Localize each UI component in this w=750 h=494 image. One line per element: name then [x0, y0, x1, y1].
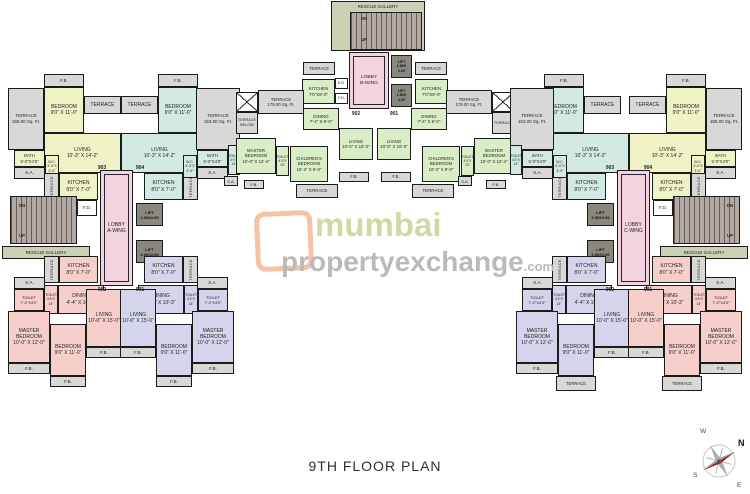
sa-label: S.A.	[705, 277, 736, 289]
bedroom-903a: BEDROOM9'0" X 11'-0"	[44, 87, 84, 133]
kitchen-903c: KITCHEN8'0" X 7'-0"	[567, 173, 606, 200]
terrace-179: TERRACE179.00 Sq. Ft.	[258, 90, 304, 114]
terrace-155a: TERRACE155.00 Sq. Ft.	[8, 88, 44, 150]
flat-number-901: 901	[386, 110, 402, 118]
stairs-dn-label: DN	[722, 202, 738, 210]
childrens-bedroom-901b: CHILDREN'SBEDROOM10'-3" X 9'-0"	[422, 146, 460, 182]
fb-strip: F.B.	[486, 180, 506, 189]
terrace-153c: TERRACE153.00 Sq. Ft.	[510, 88, 554, 150]
kitchen-904a: KITCHEN8'0" X 7'-0"	[144, 173, 183, 200]
fb-strip: F.B.	[516, 363, 558, 374]
fd-box: F.D.	[653, 200, 673, 216]
fb-strip: F.B.	[244, 180, 264, 189]
sa-label: S.A.	[224, 176, 238, 186]
compass: N W S E	[693, 427, 750, 493]
flat-number-904: 904	[132, 164, 148, 172]
fb-strip: F.B.	[156, 376, 192, 387]
toilet-902a-small: TOILET4'4"X14"	[44, 285, 58, 314]
ed-box: E.D.	[335, 78, 348, 89]
fb-strip: F.B.	[192, 363, 234, 374]
wc-903c: W.C.4'-0"X3'-0"	[553, 155, 567, 178]
terrace-strip: TERRACE	[84, 96, 121, 114]
compass-east-label: E	[737, 482, 741, 489]
flat-number-902: 902	[602, 286, 618, 294]
fb-strip: F.B.	[544, 74, 584, 87]
toilet-901c: TOILET7'-0"X4'0"	[706, 289, 736, 311]
kitchen-902c: KITCHEN8'0" X 7'-0"	[567, 256, 606, 283]
fd-box: F.D.	[335, 93, 348, 104]
bedroom-902c: BEDROOM9'0" X 11'-0"	[558, 324, 594, 376]
stairs-up-label: UP	[356, 36, 372, 44]
terrace-strip: TERRACE	[303, 62, 335, 75]
floor-plan: F.B.BEDROOM9'0" X 11'-0"TERRACE155.00 Sq…	[0, 0, 750, 494]
compass-rose-icon	[693, 427, 750, 493]
dining-902b: DINING7'-4" X 9'-0"	[303, 108, 339, 130]
toilet-901c-small: TOILET4'4"X14"	[692, 285, 706, 314]
flat-number-904: 904	[640, 164, 656, 172]
fb-strip: F.B.	[594, 347, 630, 358]
lobby-a-wing: LOBBYA-WING	[100, 170, 133, 286]
sa-label: S.A.	[14, 167, 45, 179]
living-901c: LIVING10'-0" X 15'-0"	[628, 289, 664, 347]
fb-strip: F.B.	[628, 347, 664, 358]
bedroom-902a: BEDROOM9'0" X 11'-0"	[50, 324, 86, 376]
terrace-below: TERRACEBELOW	[236, 112, 258, 134]
wc-904a: W.C.4'-0"X3'-0"	[183, 155, 197, 178]
fb-strip: F.B.	[700, 363, 742, 374]
lift-c1: LIFT2.00X2.00	[587, 203, 614, 226]
toilet-901a: TOILET7'-0"X4'0"	[198, 289, 228, 311]
page-title: 9TH FLOOR PLAN	[0, 458, 750, 474]
living-901b: LIVING10'-0" X 16'-0"	[377, 128, 411, 160]
master-bedroom-902c: MASTERBEDROOM10'-0" X 12'-0"	[516, 311, 558, 363]
sa-label: S.A.	[522, 167, 553, 179]
terrace-179: TERRACE179.00 Sq. Ft.	[446, 90, 492, 114]
living-902b: LIVING10'-0" X 16'-0"	[339, 128, 373, 160]
terrace-vertical: TERRACE	[691, 256, 706, 283]
flat-number-903: 903	[94, 164, 110, 172]
lift-b2: LIFT1.80X2.00	[391, 84, 412, 107]
fb-strip: F.B.	[120, 347, 156, 358]
toilet-902b: TOILET4'4"X14"	[276, 146, 289, 176]
master-bedroom-901c: MASTERBEDROOM10'-0" X 12'-0"	[700, 311, 742, 363]
terrace-strip: TERRACE	[415, 62, 447, 75]
fb-strip: F.B.	[50, 376, 86, 387]
stairs-up-label: UP	[14, 232, 30, 240]
lift-b1: LIFT1.80X2.00	[391, 55, 412, 78]
sa-label: S.A.	[458, 176, 472, 186]
lobby-b-wing: LOBBYB-WING	[349, 52, 389, 109]
kitchen-902a: KITCHEN8'0" X 7'-0"	[59, 256, 98, 283]
compass-north-label: N	[738, 438, 745, 448]
bedroom-904a: BEDROOM9'0" X 11'-0"	[158, 87, 198, 133]
childrens-bedroom-902b: CHILDREN'SBEDROOM10'-3" X 9'-0"	[290, 146, 328, 182]
fb-strip: F.B.	[86, 347, 122, 358]
kitchen-902b: KITCHEN7'0"X8'-0"	[302, 79, 335, 104]
living-902a: LIVING10'-0" X 15'-0"	[86, 289, 122, 347]
compass-west-label: W	[700, 428, 706, 435]
lift-a1: LIFT2.00X2.00	[136, 203, 163, 226]
kitchen-901a: KITCHEN8'0" X 7'-0"	[144, 256, 183, 283]
toilet-901b: TOILET4'4"X14"	[461, 146, 474, 176]
bedroom-904c: BEDROOM9'0" X 11'-0"	[666, 87, 706, 133]
fb-strip: F.B.	[44, 74, 84, 87]
flat-number-903: 903	[602, 164, 618, 172]
master-bedroom-901b: MASTERBEDROOM10'-0" X 12'-4"	[474, 138, 514, 174]
sa-label: S.A.	[14, 277, 45, 289]
kitchen-901b: KITCHEN7'0"X8'-0"	[415, 79, 448, 104]
lobby-c-wing: LOBBYC-WING	[617, 170, 650, 286]
bath-903a: BATH5'-0"X4'0"	[14, 150, 45, 167]
fd-box: F.D.	[77, 200, 97, 216]
living-901a: LIVING10'-0" X 15'-0"	[120, 289, 156, 347]
toilet-902c-small: TOILET4'4"X14"	[552, 285, 566, 314]
stairs-dn-label: DN	[14, 202, 30, 210]
bath-903c: BATH5'-0"X4'0"	[522, 150, 553, 167]
toilet-902a: TOILET7'-0"X4'0"	[14, 289, 44, 311]
flat-number-902: 902	[94, 286, 110, 294]
toilet-902c: TOILET7'-0"X4'0"	[522, 289, 552, 311]
terrace-901b: TERRACE	[412, 184, 454, 198]
terrace-strip: TERRACE	[121, 96, 158, 114]
bedroom-901c: BEDROOM9'0" X 11'-0"	[664, 324, 700, 376]
terrace-strip: TERRACE	[584, 96, 621, 114]
terrace-vertical: TERRACE	[552, 256, 567, 283]
terrace-vertical: TERRACE	[183, 256, 198, 283]
flat-number-901: 901	[132, 286, 148, 294]
terrace-strip: TERRACE	[629, 96, 666, 114]
fb-strip: F.B.	[666, 74, 706, 87]
fb-strip: F.B.	[158, 74, 198, 87]
master-bedroom-901a: MASTERBEDROOM10'-0" X 12'-0"	[192, 311, 234, 363]
dining-901b: DINING7'-4" X 9'-0"	[411, 108, 447, 130]
toilet-903c: TOILET4'4"X14"	[510, 145, 522, 175]
toilet-901a-small: TOILET4'4"X14"	[184, 285, 198, 314]
rescue-gallery-b-label: RESCUE GALLERY	[335, 2, 421, 11]
fb-strip: F.B.	[339, 172, 369, 182]
floor-plan-page: F.B.BEDROOM9'0" X 11'-0"TERRACE155.00 Sq…	[0, 0, 750, 494]
stairs-up-label: UP	[722, 232, 738, 240]
fb-strip: F.B.	[8, 363, 50, 374]
sa-label: S.A.	[705, 167, 736, 179]
terrace-155c: TERRACE155.00 Sq. Ft.	[706, 88, 742, 150]
master-bedroom-902b: MASTERBEDROOM10'-0" X 12'-4"	[236, 138, 276, 174]
kitchen-901c: KITCHEN8'0" X 7'-0"	[652, 256, 691, 283]
terrace-under: TERRACE	[556, 376, 596, 391]
sa-label: S.A.	[522, 277, 553, 289]
terrace-under: TERRACE	[662, 376, 702, 391]
fb-strip: F.B.	[381, 172, 411, 182]
flat-number-902: 902	[348, 110, 364, 118]
compass-south-label: S	[693, 472, 697, 479]
living-902c: LIVING10'-0" X 15'-0"	[594, 289, 630, 347]
stairs-dn-label: DN	[356, 15, 372, 23]
terrace-153a: TERRACE153.00 Sq. Ft.	[196, 88, 240, 150]
terrace-902b: TERRACE	[296, 184, 338, 198]
master-bedroom-902a: MASTERBEDROOM10'-0" X 12'-0"	[8, 311, 50, 363]
terrace-vertical: TERRACE	[44, 256, 59, 283]
bedroom-901a: BEDROOM9'0" X 11'-0"	[156, 324, 192, 376]
sa-label: S.A.	[197, 277, 228, 289]
void-box	[236, 92, 258, 112]
bath-904a: BATH5'-0"X4'0"	[197, 150, 228, 167]
bath-904c: BATH5'-0"X4'0"	[705, 150, 736, 167]
flat-number-901: 901	[640, 286, 656, 294]
